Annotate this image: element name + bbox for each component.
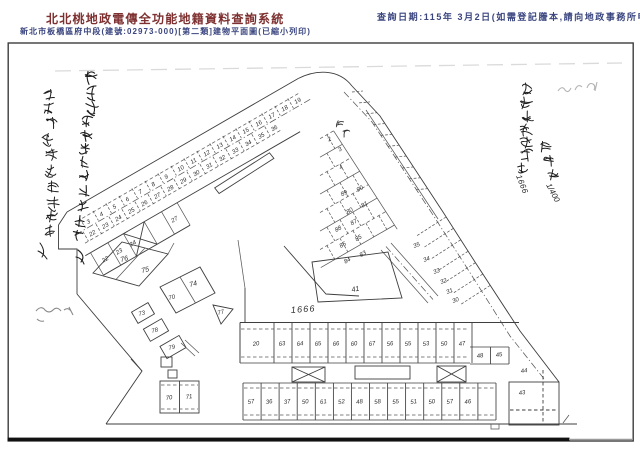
svg-text:46: 46 — [464, 399, 472, 406]
svg-text:25: 25 — [127, 207, 137, 216]
svg-text:7: 7 — [138, 189, 144, 196]
svg-text:32: 32 — [440, 278, 449, 286]
svg-text:81: 81 — [360, 201, 369, 210]
svg-text:55: 55 — [404, 341, 412, 348]
svg-text:74: 74 — [189, 280, 198, 289]
svg-text:30: 30 — [452, 297, 461, 305]
svg-text:9: 9 — [164, 174, 170, 181]
svg-text:44: 44 — [520, 368, 528, 375]
svg-text:10: 10 — [177, 165, 186, 174]
svg-text:43: 43 — [518, 390, 526, 397]
svg-text:20: 20 — [251, 341, 260, 348]
svg-text:55: 55 — [392, 399, 400, 406]
svg-text:41: 41 — [351, 285, 360, 293]
svg-text:8: 8 — [151, 181, 157, 188]
svg-text:3: 3 — [337, 146, 343, 153]
svg-text:22: 22 — [88, 229, 98, 238]
svg-text:51: 51 — [410, 399, 417, 406]
svg-text:1666: 1666 — [290, 303, 315, 315]
svg-text:50: 50 — [302, 399, 310, 406]
svg-text:76: 76 — [120, 255, 129, 264]
svg-text:67: 67 — [368, 341, 376, 348]
svg-text:48: 48 — [356, 399, 364, 406]
svg-text:11: 11 — [190, 158, 198, 166]
svg-text:18: 18 — [281, 105, 290, 114]
svg-text:28: 28 — [166, 184, 176, 193]
svg-text:77: 77 — [217, 309, 226, 317]
svg-text:80: 80 — [346, 207, 355, 216]
svg-text:29: 29 — [179, 177, 189, 186]
svg-text:65: 65 — [314, 341, 322, 348]
svg-text:35: 35 — [413, 242, 422, 250]
svg-text:31: 31 — [446, 288, 454, 296]
svg-text:33: 33 — [231, 147, 240, 156]
svg-text:34: 34 — [423, 256, 432, 264]
svg-text:6: 6 — [125, 196, 131, 203]
svg-text:23: 23 — [101, 222, 111, 231]
svg-text:88: 88 — [334, 225, 343, 234]
svg-text:48: 48 — [476, 353, 484, 360]
svg-text:79: 79 — [168, 344, 177, 352]
svg-text:87: 87 — [350, 218, 359, 227]
svg-text:12: 12 — [203, 150, 212, 159]
svg-text:53: 53 — [422, 341, 430, 348]
svg-text:58: 58 — [374, 399, 382, 406]
svg-text:37: 37 — [284, 399, 292, 406]
svg-text:45: 45 — [495, 352, 503, 359]
svg-text:35: 35 — [257, 132, 266, 141]
svg-text:63: 63 — [278, 341, 286, 348]
svg-text:26: 26 — [140, 199, 150, 208]
svg-text:36: 36 — [266, 399, 274, 406]
svg-text:61: 61 — [320, 399, 327, 406]
svg-text:50: 50 — [428, 399, 436, 406]
svg-text:5: 5 — [112, 204, 118, 211]
svg-text:78: 78 — [151, 327, 160, 335]
svg-text:57: 57 — [247, 399, 255, 406]
svg-text:66: 66 — [332, 341, 340, 348]
svg-text:71: 71 — [185, 394, 192, 401]
svg-text:47: 47 — [458, 341, 466, 348]
svg-text:27: 27 — [153, 192, 163, 201]
svg-text:57: 57 — [446, 399, 454, 406]
svg-text:3: 3 — [86, 219, 92, 226]
svg-text:73: 73 — [138, 310, 147, 318]
svg-text:4: 4 — [99, 211, 105, 218]
svg-text:50: 50 — [440, 341, 448, 348]
svg-text:13: 13 — [216, 142, 225, 151]
svg-text:52: 52 — [338, 399, 346, 406]
svg-text:90: 90 — [356, 185, 365, 194]
svg-text:86: 86 — [339, 241, 348, 250]
svg-text:24: 24 — [114, 214, 124, 223]
svg-text:64: 64 — [296, 341, 304, 348]
svg-text:70: 70 — [165, 395, 173, 402]
svg-text:70: 70 — [168, 294, 177, 302]
svg-text:27: 27 — [170, 216, 180, 225]
svg-text:75: 75 — [141, 266, 150, 275]
svg-text:56: 56 — [386, 341, 394, 348]
svg-text:1666: 1666 — [514, 173, 530, 195]
svg-text:2: 2 — [326, 136, 333, 144]
svg-text:1/400: 1/400 — [544, 182, 562, 204]
svg-text:60: 60 — [350, 341, 358, 348]
svg-text:4: 4 — [338, 164, 344, 171]
